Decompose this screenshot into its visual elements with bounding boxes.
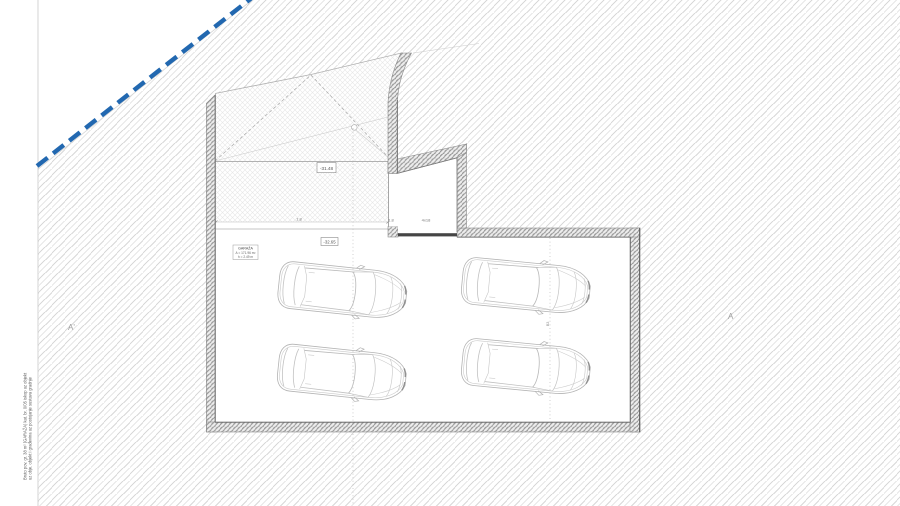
svg-text:A: A xyxy=(728,312,734,321)
svg-text:1.8: 1.8 xyxy=(296,217,302,222)
svg-text:-31.48: -31.48 xyxy=(320,166,333,171)
svg-text:4x18: 4x18 xyxy=(422,218,431,223)
svg-text:uz obje. objekt i građevina uz: uz obje. objekt i građevina uz postojanj… xyxy=(28,376,33,480)
svg-text:-32.65: -32.65 xyxy=(323,240,336,245)
svg-text:B3: B3 xyxy=(546,322,550,326)
svg-text:1.8: 1.8 xyxy=(388,218,394,223)
svg-text:h = 2.49 m: h = 2.49 m xyxy=(238,255,253,259)
svg-text:A': A' xyxy=(68,323,75,332)
svg-text:GARAŽA: GARAŽA xyxy=(238,245,253,250)
